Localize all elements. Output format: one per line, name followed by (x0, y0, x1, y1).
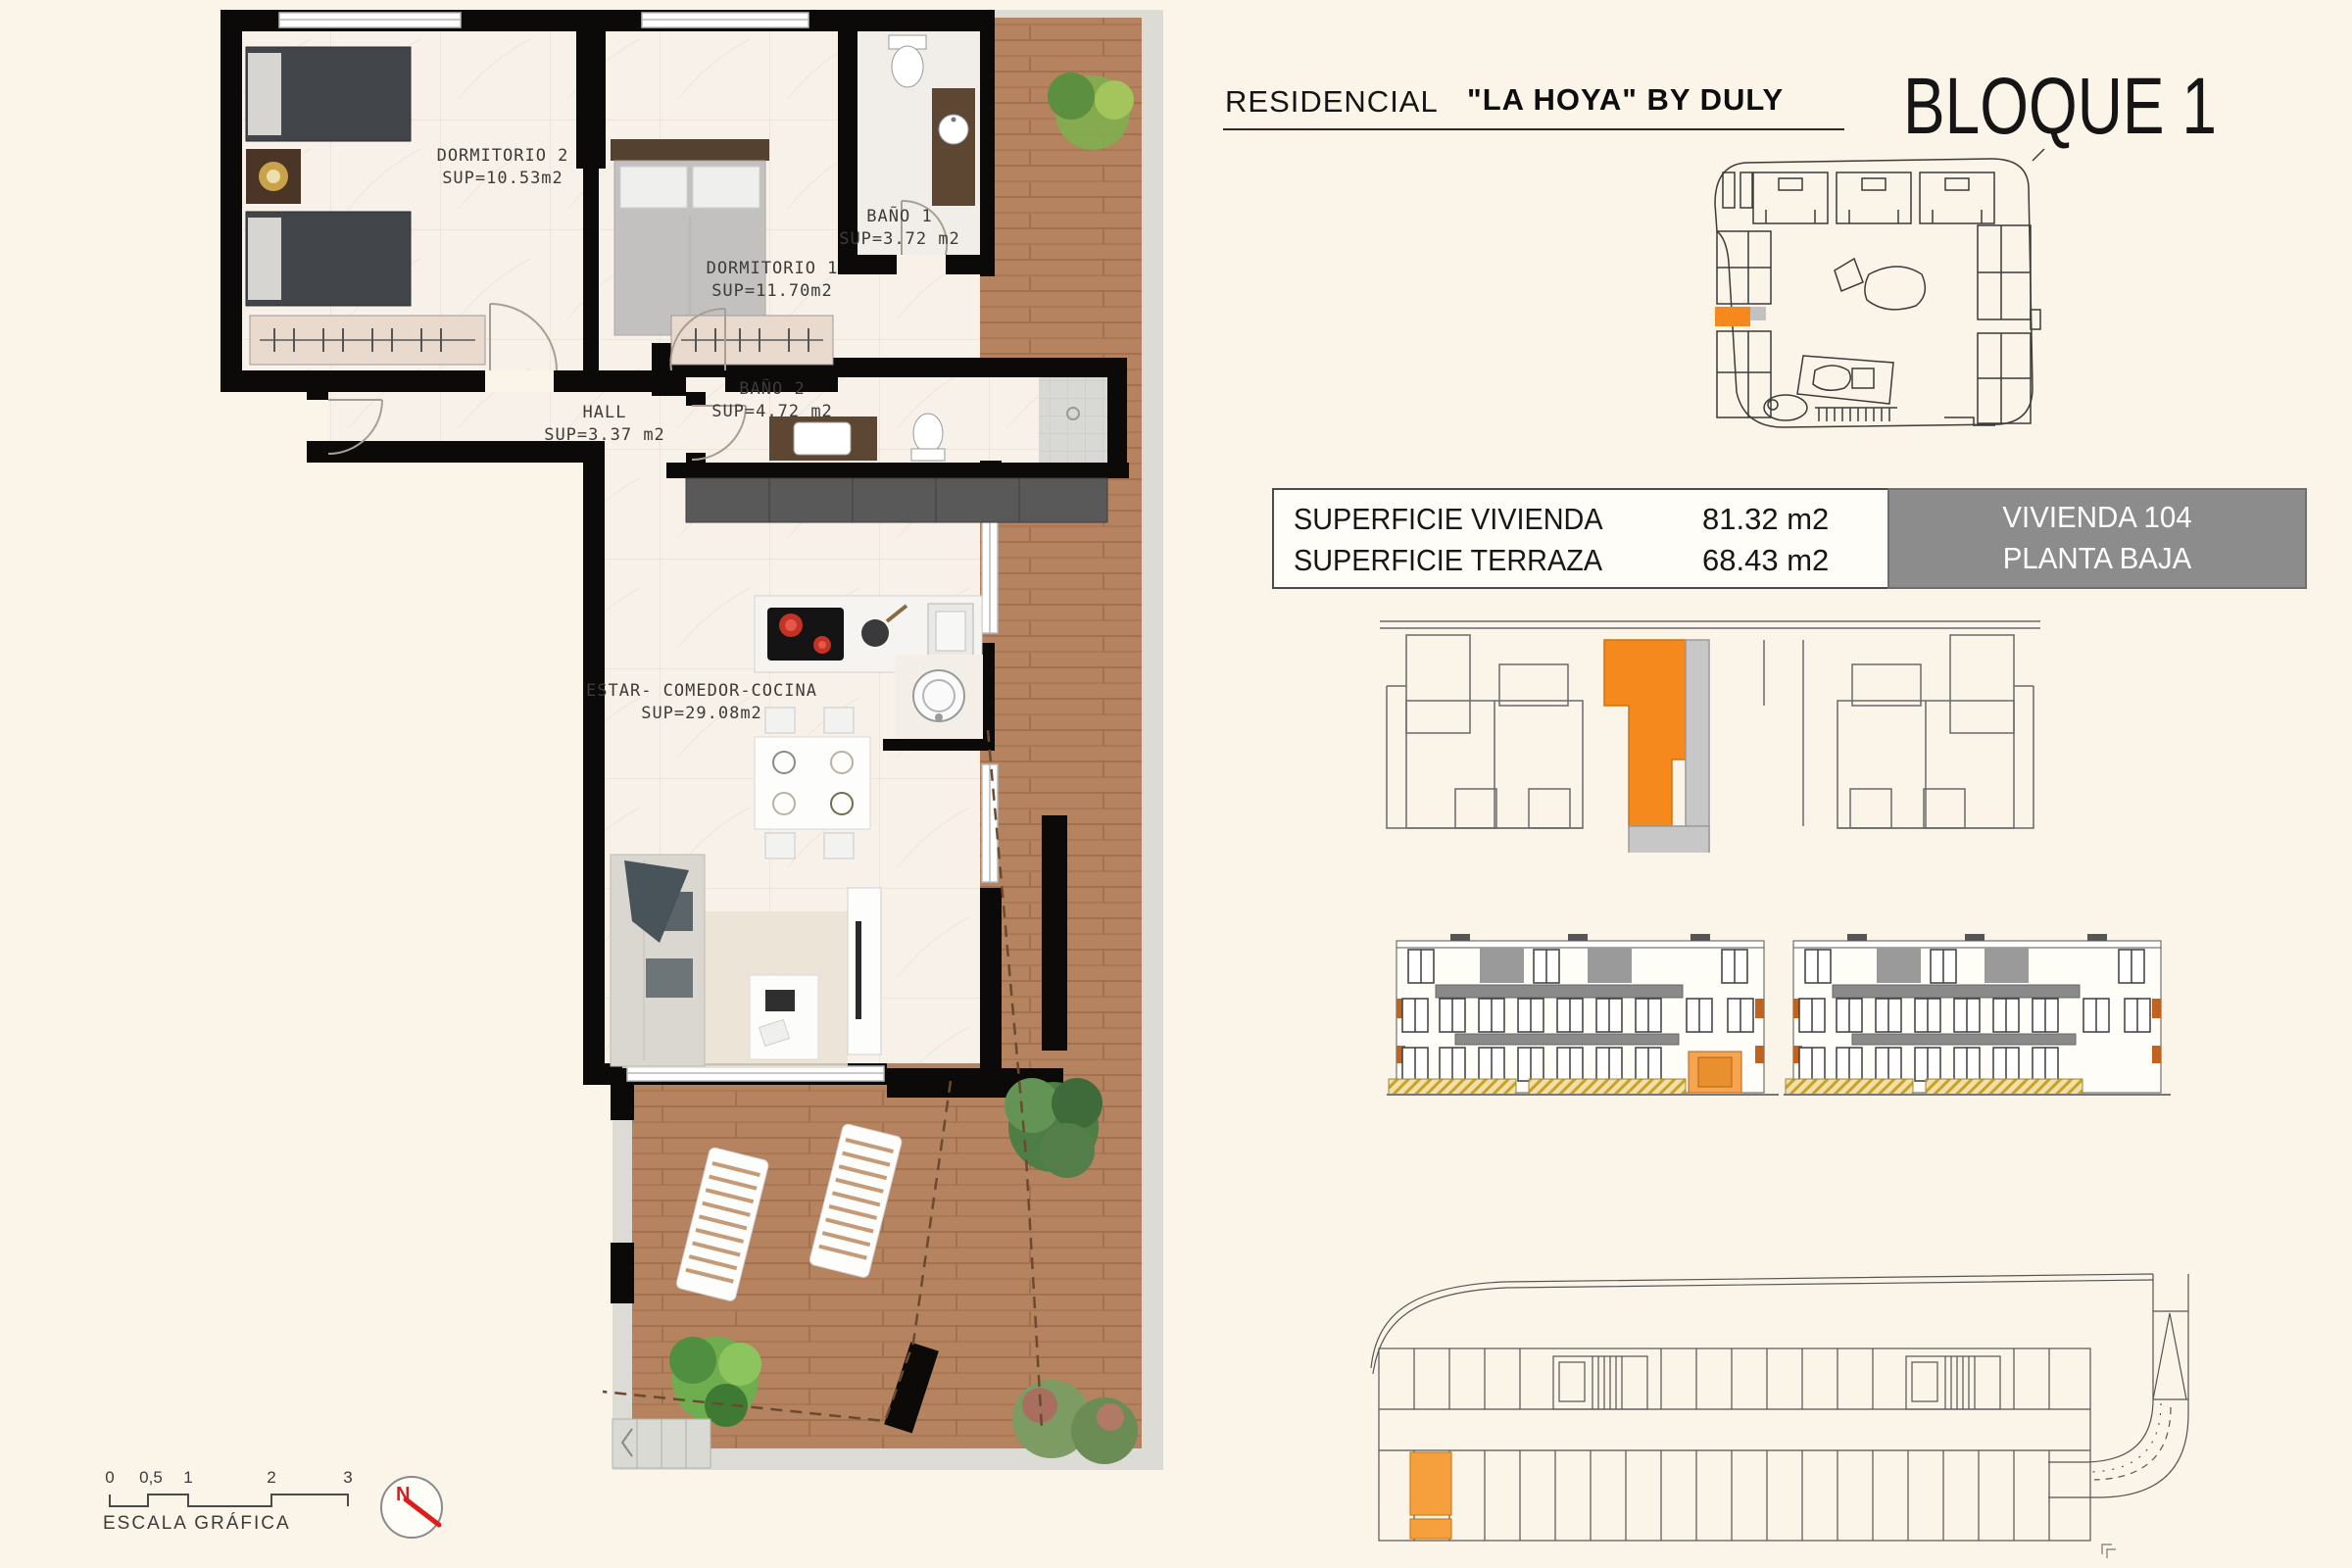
brochure-page: DORMITORIO 2SUP=10.53m2 DORMITORIO 1SUP=… (0, 0, 2352, 1568)
stairs (612, 1419, 710, 1468)
header-residencial: RESIDENCIAL (1225, 84, 1439, 120)
corner-mark (2102, 1544, 2116, 1558)
scale-tick-1: 1 (183, 1468, 192, 1488)
site-amenities (1764, 356, 1995, 425)
surface-vivienda-label: SUPERFICIE VIVIENDA (1294, 502, 1603, 537)
elevations (1387, 926, 2171, 1107)
room-label-bano1: BAÑO 1SUP=3.72 m2 (839, 206, 960, 251)
unit-floor: PLANTA BAJA (1900, 541, 2295, 576)
site-pools (1835, 259, 1925, 310)
site-plan (1688, 145, 2060, 439)
elevation-rear (1784, 934, 2171, 1095)
site-right-buildings (1978, 225, 2040, 423)
block-stair-core (1686, 640, 1709, 853)
scale-bar (93, 1465, 377, 1519)
stair-core (1906, 1356, 2000, 1409)
floor-plan-drawing (220, 10, 1166, 1470)
scale-caption: ESCALA GRÁFICA (103, 1513, 291, 1535)
north-arrow (378, 1474, 445, 1541)
surface-table: SUPERFICIE VIVIENDA 81.32 m2 SUPERFICIE … (1272, 488, 1891, 589)
room-label-hall: HALLSUP=3.37 m2 (544, 402, 665, 447)
surface-vivienda-value: 81.32 m2 (1702, 502, 1829, 537)
block-right-cluster (1764, 635, 2033, 828)
unit-number: VIVIENDA 104 (1900, 500, 2295, 535)
block-left-cluster (1387, 635, 1583, 828)
scale-tick-0: 0 (105, 1468, 114, 1488)
room-label-dormitorio1: DORMITORIO 1SUP=11.70m2 (707, 258, 839, 303)
water-heater (895, 655, 983, 739)
scale-tick-05: 0,5 (139, 1468, 163, 1488)
north-letter: N (396, 1484, 410, 1506)
stair-core (1553, 1356, 1647, 1409)
garage-building (1379, 1348, 2090, 1541)
garage-highlight-space (1410, 1452, 1451, 1515)
room-label-dormitorio2: DORMITORIO 2SUP=10.53m2 (437, 145, 569, 190)
site-left-buildings (1715, 231, 1771, 417)
garage-ramp (2048, 1274, 2188, 1497)
block-key-plan (1372, 608, 2048, 853)
scale-tick-3: 3 (343, 1468, 352, 1488)
header-project-name: "LA HOYA" BY DULY (1467, 82, 1784, 118)
block-highlight-unit (1604, 640, 1686, 826)
site-highlight-unit (1715, 307, 1750, 326)
room-label-estar: ESTAR- COMEDOR-COCINASUP=29.08m2 (586, 680, 817, 725)
surface-terraza-value: 68.43 m2 (1702, 543, 1829, 578)
garage-plan (1357, 1252, 2220, 1561)
header-underline (1223, 128, 1844, 130)
room-label-bano2: BAÑO 2SUP=4.72 m2 (711, 378, 833, 423)
unit-box: VIVIENDA 104 PLANTA BAJA (1887, 488, 2307, 589)
header-block-title: BLOQUE 1 (1903, 61, 2217, 153)
scale-tick-2: 2 (267, 1468, 275, 1488)
elevation-front (1387, 934, 1779, 1095)
surface-terraza-label: SUPERFICIE TERRAZA (1294, 543, 1602, 578)
site-top-buildings (1753, 172, 1994, 223)
